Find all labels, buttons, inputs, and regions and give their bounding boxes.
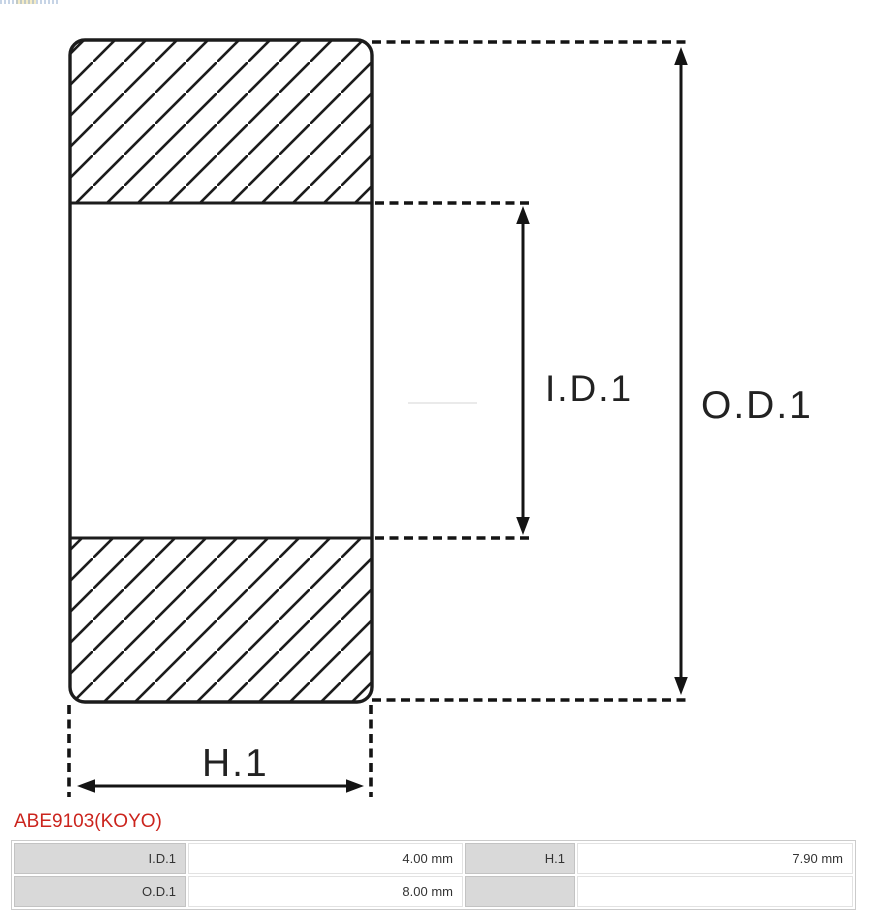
bottom-race-hatch — [70, 538, 372, 702]
spec-value-id: 4.00 mm — [188, 843, 463, 874]
bearing-cross-section-diagram: I.D.1 O.D.1 H.1 — [0, 0, 871, 808]
spec-label-empty — [465, 876, 575, 907]
part-number-link[interactable]: ABE9103(KOYO) — [14, 811, 162, 833]
top-race-hatch — [70, 40, 372, 203]
spec-value-h: 7.90 mm — [577, 843, 853, 874]
id-dimension-arrow — [516, 206, 530, 535]
od-label: O.D.1 — [701, 384, 813, 427]
id-label: I.D.1 — [545, 368, 633, 409]
spec-label-h: H.1 — [465, 843, 575, 874]
spec-table: I.D.1 4.00 mm H.1 7.90 mm O.D.1 8.00 mm — [11, 840, 856, 910]
spec-label-od: O.D.1 — [14, 876, 186, 907]
spec-value-od: 8.00 mm — [188, 876, 463, 907]
od-dimension-arrow — [674, 47, 688, 695]
spec-row: I.D.1 4.00 mm H.1 7.90 mm — [14, 843, 853, 874]
spec-label-id: I.D.1 — [14, 843, 186, 874]
product-drawing-page: I.D.1 O.D.1 H.1 ABE9103(KOYO) I.D.1 4.00… — [0, 0, 871, 913]
spec-row: O.D.1 8.00 mm — [14, 876, 853, 907]
spec-value-empty — [577, 876, 853, 907]
h-label: H.1 — [202, 742, 269, 785]
